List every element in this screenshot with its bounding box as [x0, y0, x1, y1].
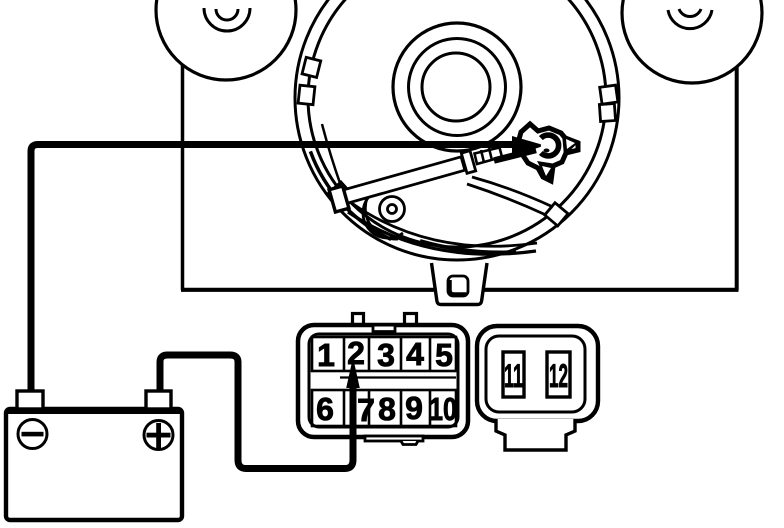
svg-text:11: 11 — [504, 357, 523, 394]
svg-text:7: 7 — [357, 392, 375, 428]
svg-text:1: 1 — [317, 337, 335, 373]
svg-text:9: 9 — [405, 390, 423, 426]
svg-text:4: 4 — [406, 336, 424, 372]
svg-text:12: 12 — [549, 357, 568, 394]
svg-text:3: 3 — [377, 337, 395, 373]
svg-text:6: 6 — [316, 391, 334, 427]
svg-text:2: 2 — [347, 335, 365, 371]
svg-text:5: 5 — [435, 337, 453, 373]
svg-text:8: 8 — [378, 391, 396, 427]
svg-text:10: 10 — [429, 391, 457, 427]
